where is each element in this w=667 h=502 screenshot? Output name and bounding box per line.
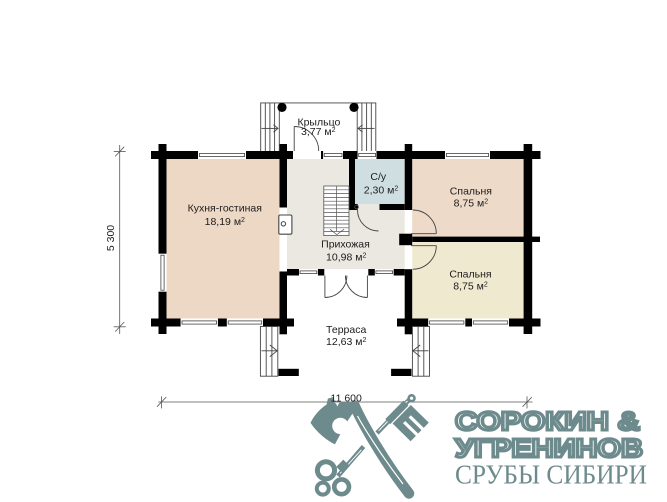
svg-text:Спальня: Спальня [450, 186, 492, 198]
svg-text:8,75 м2: 8,75 м2 [453, 280, 488, 292]
svg-text:Терраса: Терраса [326, 324, 366, 336]
svg-text:Кухня-гостиная: Кухня-гостиная [188, 202, 262, 214]
svg-text:11 600: 11 600 [331, 392, 362, 404]
svg-text:СОРОКИН &: СОРОКИН & [455, 406, 640, 436]
svg-text:Спальня: Спальня [449, 269, 491, 281]
svg-text:УГРЕНИНОВ: УГРЕНИНОВ [455, 433, 643, 463]
svg-text:Прихожая: Прихожая [321, 239, 370, 251]
svg-text:2,30 м2: 2,30 м2 [364, 184, 399, 196]
svg-text:5 300: 5 300 [105, 225, 117, 251]
svg-text:СРУБЫ СИБИРИ: СРУБЫ СИБИРИ [455, 460, 647, 490]
svg-text:12,63 м2: 12,63 м2 [326, 336, 366, 348]
svg-text:8,75 м2: 8,75 м2 [454, 198, 489, 210]
svg-text:С/у: С/у [370, 171, 387, 183]
svg-text:18,19 м2: 18,19 м2 [205, 216, 245, 228]
svg-text:10,98 м2: 10,98 м2 [326, 251, 366, 263]
svg-text:3,77 м2: 3,77 м2 [301, 126, 336, 138]
